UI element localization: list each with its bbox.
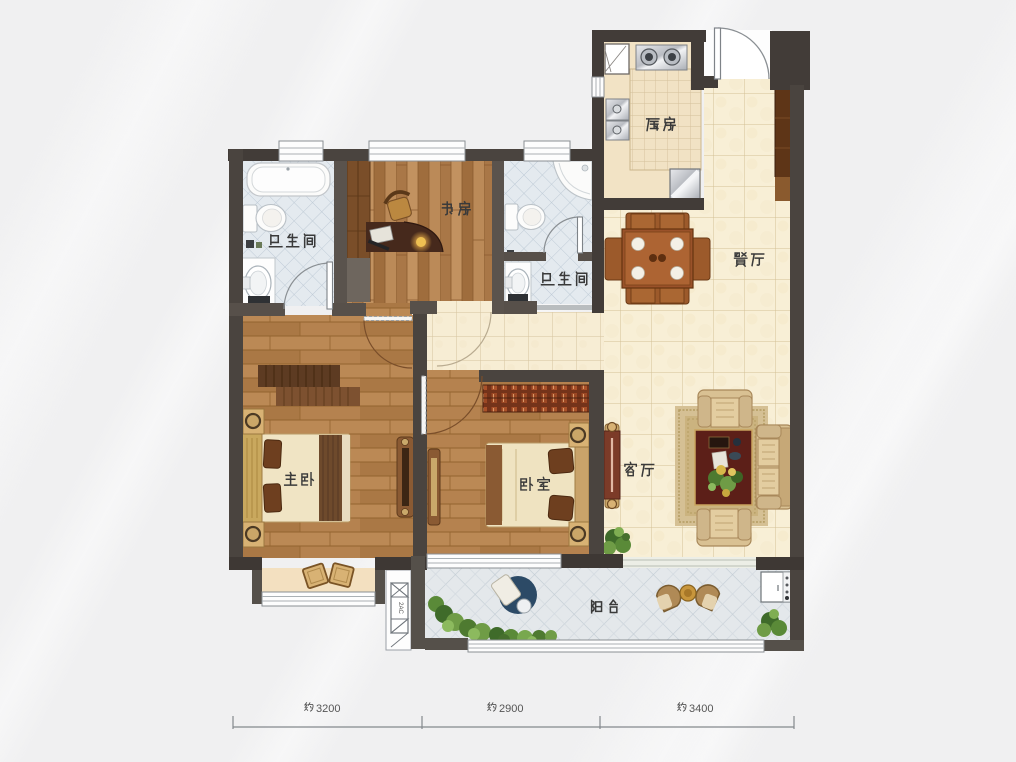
svg-text:2AC: 2AC <box>397 602 403 614</box>
svg-text:3200: 3200 <box>316 703 340 715</box>
svg-text:2900: 2900 <box>499 703 523 715</box>
svg-text:3400: 3400 <box>689 703 713 715</box>
